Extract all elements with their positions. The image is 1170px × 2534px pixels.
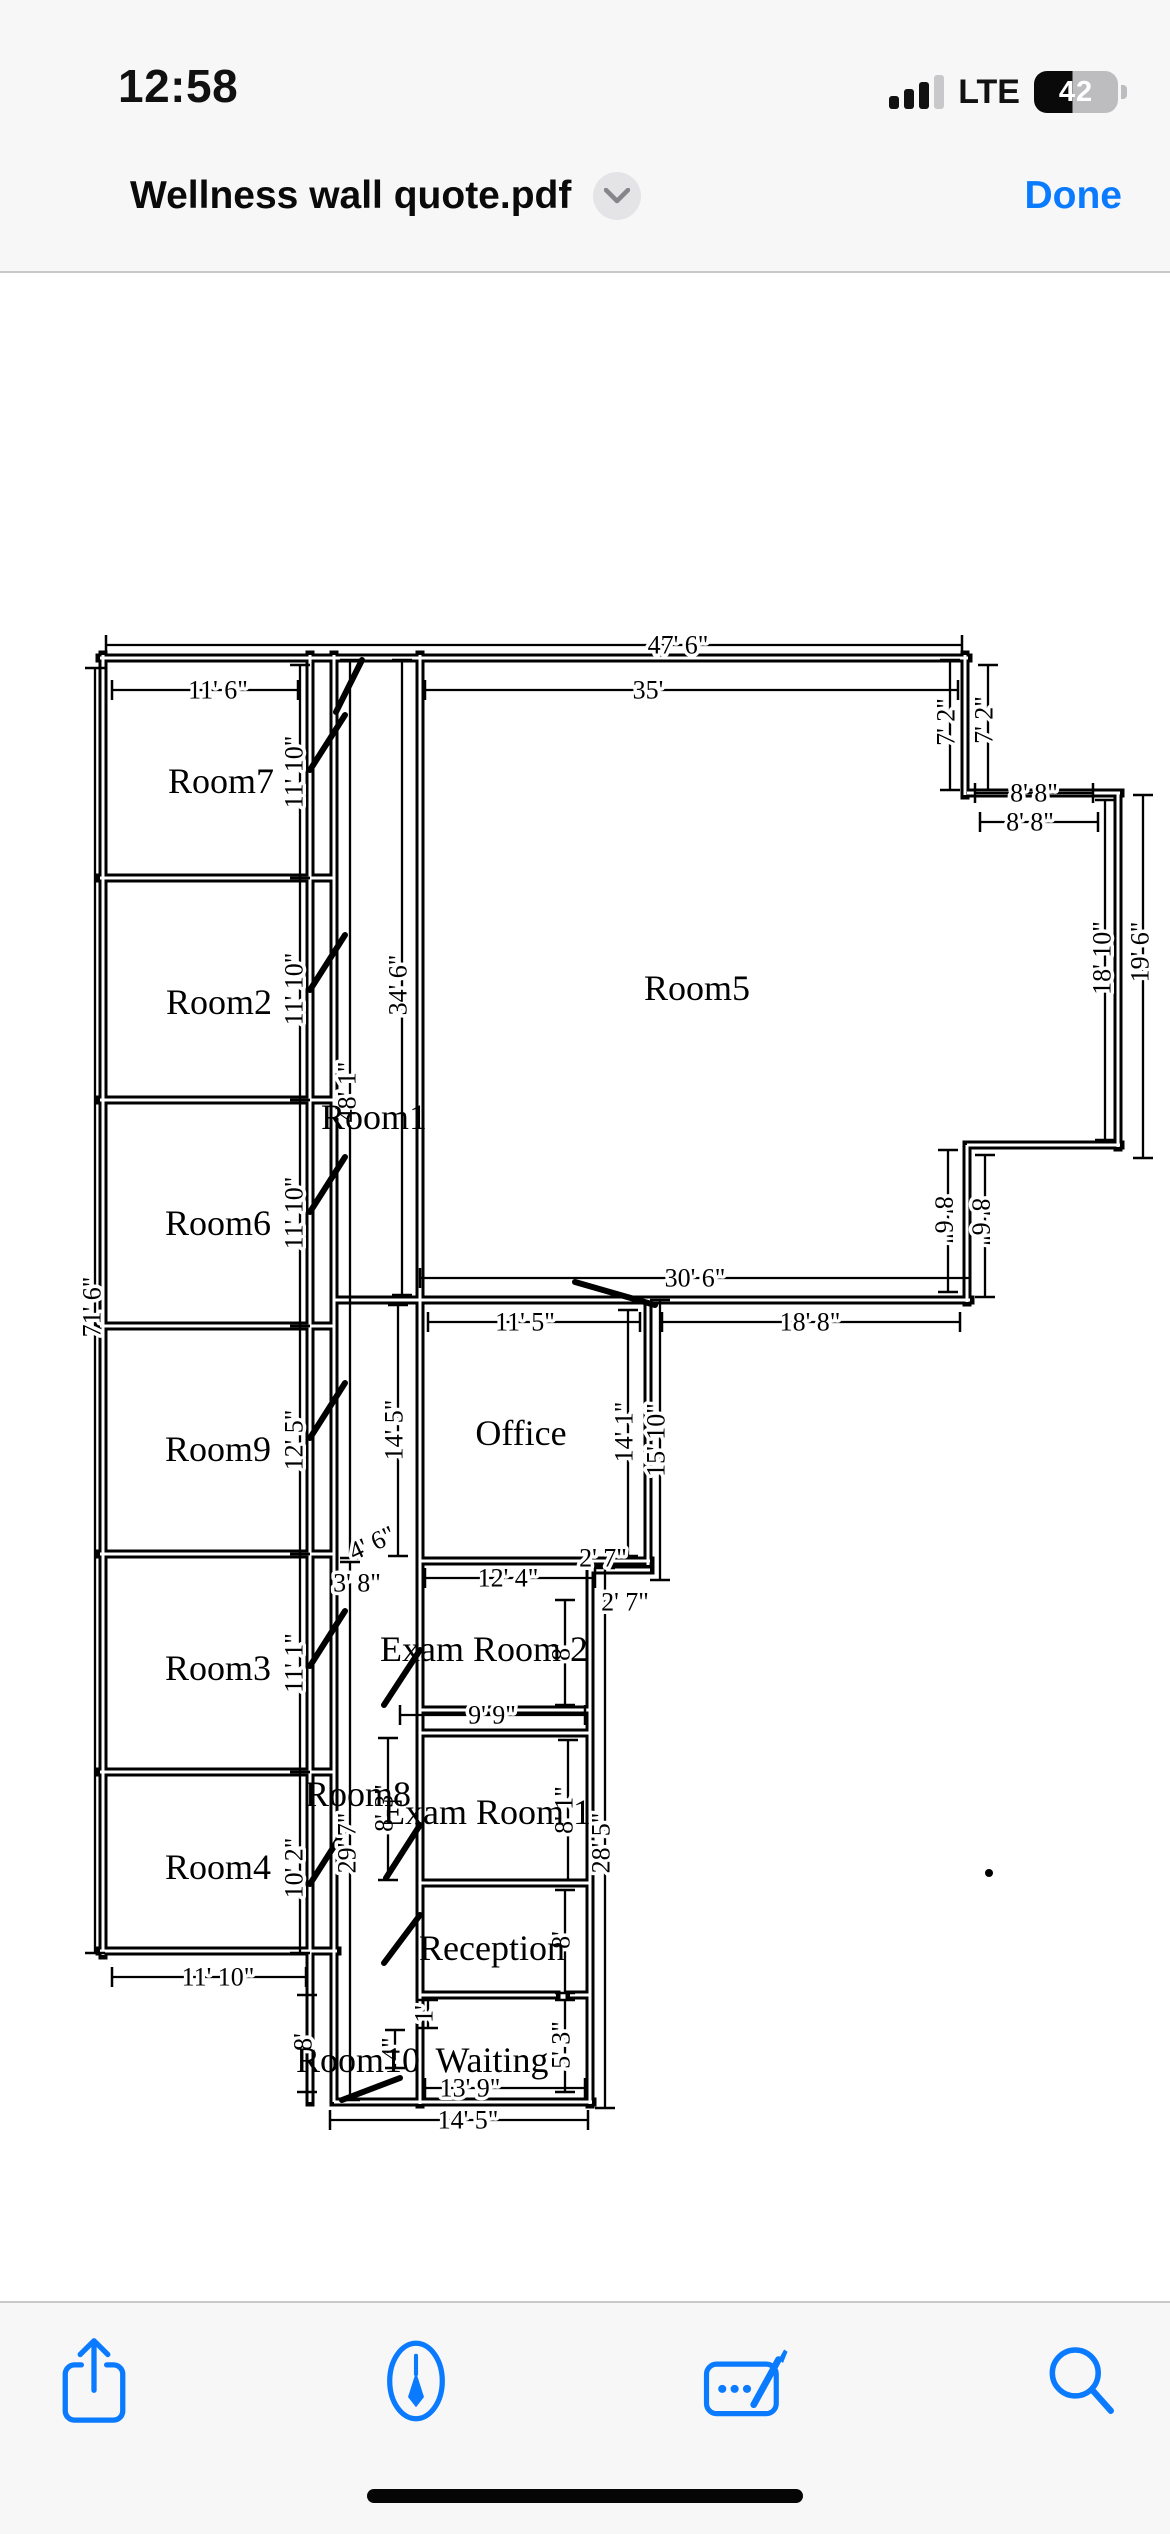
dim-label: 47' 6" (648, 631, 709, 660)
dim-label: 5' 3" (547, 2021, 576, 2069)
dim-label: 19' 6" (1126, 922, 1155, 983)
room-label: Room5 (644, 968, 750, 1008)
dim-label: 14' 1" (610, 1402, 639, 1463)
dim-label: 15' 10" (642, 1403, 671, 1477)
search-button[interactable] (1036, 2331, 1126, 2431)
title-bar: Wellness wall quote.pdf Done (0, 131, 1170, 273)
room-label: Room3 (165, 1648, 271, 1688)
status-icons: LTE 42 (889, 71, 1118, 113)
clock: 12:58 (118, 59, 238, 113)
dim-label: 2' 7" (601, 1588, 649, 1617)
room-label: Office (475, 1413, 566, 1453)
dim-label: 8' 6" (967, 1198, 996, 1246)
room-label: Room1 (321, 1097, 427, 1137)
dim-label: 12' 5" (280, 1410, 309, 1471)
dim-label: 11' 10" (280, 736, 309, 809)
dim-label: 2' 7" (579, 1544, 627, 1573)
dim-label: 8' 8" (1010, 779, 1058, 808)
floorplan: 47' 6" 11' 6" 35' 8' 8" 8' 8" 30' 6" 11'… (78, 631, 1155, 2135)
cellular-signal-icon (889, 75, 944, 109)
room-label: Waiting (435, 2040, 548, 2080)
room-label: Room10 (296, 2040, 420, 2080)
dim-label: 1' (410, 2005, 439, 2023)
home-indicator[interactable] (367, 2489, 803, 2503)
document-title: Wellness wall quote.pdf (130, 174, 571, 218)
share-icon (57, 2335, 131, 2427)
room-label: Room7 (168, 761, 274, 801)
fill-and-sign-button[interactable] (702, 2331, 792, 2431)
markup-icon (384, 2337, 448, 2425)
dim-label: 8' 8" (1006, 808, 1054, 837)
dim-label: 35' (633, 676, 664, 705)
room-label: Exam Room 2 (380, 1629, 588, 1669)
dim-label: 12' 4" (478, 1564, 539, 1593)
dim-label: 8' 6" (930, 1196, 959, 1244)
stray-dot (985, 1869, 993, 1877)
network-type: LTE (958, 73, 1020, 112)
dim-label: 11' 10" (280, 1177, 309, 1250)
room-label: Room6 (165, 1203, 271, 1243)
room-label: Reception (419, 1928, 565, 1968)
dim-label: 14' 5" (380, 1400, 409, 1461)
markup-button[interactable] (371, 2331, 461, 2431)
room-label: Room2 (166, 982, 272, 1022)
title-menu-button[interactable] (593, 172, 641, 220)
battery-percent: 42 (1059, 76, 1093, 109)
dim-label: 11' 5" (495, 1308, 555, 1337)
room-label: Room9 (165, 1429, 271, 1469)
dim-label: 7' 2" (932, 698, 961, 746)
dim-label: 11' 1" (280, 1633, 309, 1693)
dimension-lines (95, 645, 1143, 2120)
share-button[interactable] (49, 2331, 139, 2431)
dim-label: 71' 6" (78, 1277, 107, 1338)
dimension-labels: 47' 6" 11' 6" 35' 8' 8" 8' 8" 30' 6" 11'… (78, 631, 1155, 2135)
dim-label: 3' 8" (333, 1569, 381, 1598)
dim-label: 18' 8" (780, 1308, 841, 1337)
fill-and-sign-icon (702, 2341, 792, 2421)
dim-label: 34' 6" (384, 955, 413, 1016)
dim-label: 11' 6" (188, 676, 248, 705)
dim-label: 4' 6" (344, 1520, 400, 1566)
room-label: Room4 (165, 1847, 271, 1887)
dim-label: 10' 2" (280, 1838, 309, 1899)
chevron-down-icon (604, 188, 630, 204)
status-bar: 12:58 LTE 42 (0, 0, 1170, 131)
dim-label: 29' 7" (333, 1813, 362, 1874)
battery-icon: 42 (1034, 71, 1118, 113)
dim-label: 18' 10" (1088, 921, 1117, 995)
dim-label: 11' 10" (280, 953, 309, 1026)
pdf-page[interactable]: 47' 6" 11' 6" 35' 8' 8" 8' 8" 30' 6" 11'… (0, 0, 1170, 2532)
dim-label: 7' 2" (970, 696, 999, 744)
dim-label: 14' 5" (438, 2106, 499, 2135)
room-label: Exam Room 1 (383, 1792, 591, 1832)
search-icon (1044, 2342, 1118, 2420)
dim-label: 9' 9" (468, 1701, 516, 1730)
dim-label: 30' 6" (665, 1264, 726, 1293)
dim-label: 11' 10" (182, 1963, 255, 1992)
done-button[interactable]: Done (1025, 174, 1123, 218)
